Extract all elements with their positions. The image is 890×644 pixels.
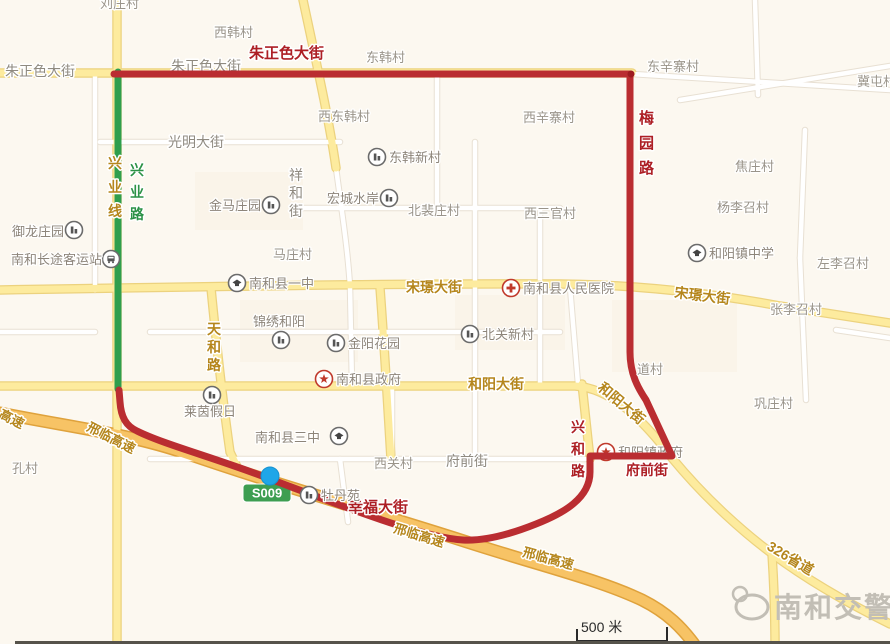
overlays: 南和交警500 米: [15, 467, 890, 644]
hospital-cross: [507, 287, 516, 290]
poi-label: 金阳花园: [348, 336, 400, 351]
watermark-text: 南和交警: [774, 591, 890, 623]
building-icon-circle: [263, 197, 280, 214]
building-glyph: [75, 229, 78, 234]
village-label: 左李召村: [817, 256, 869, 271]
gov-icon: [316, 371, 333, 388]
building-glyph: [213, 394, 216, 399]
building-icon: [381, 190, 398, 207]
traffic-police-logo: [736, 595, 768, 619]
building-icon-circle: [381, 190, 398, 207]
street-label: 园: [639, 135, 654, 152]
route-vertex-dot: [628, 71, 635, 78]
poi-label: 南和县政府: [336, 372, 401, 387]
village-label: 西韩村: [214, 25, 253, 40]
building-glyph: [71, 227, 74, 234]
building-icon: [462, 326, 479, 343]
building-icon: [301, 487, 318, 504]
building-glyph: [282, 339, 285, 344]
street-label: 府前街: [446, 453, 488, 469]
building-glyph: [378, 156, 381, 161]
poi-label: 锦绣和阳: [253, 314, 305, 329]
village-label: 西东韩村: [318, 109, 370, 124]
minor-road: [800, 258, 806, 400]
street-label: 和阳大街: [468, 376, 524, 392]
poi-label: 东韩新村: [389, 150, 441, 165]
village-label: 道村: [637, 362, 663, 377]
building-icon-circle: [273, 332, 290, 349]
building-icon: [369, 149, 386, 166]
poi-label: 御龙庄园: [12, 224, 64, 239]
street-label: 府前街: [626, 462, 668, 478]
street-label: 天: [207, 321, 222, 337]
school-glyph: [337, 437, 341, 440]
shield-number: S009: [252, 486, 282, 501]
poi-label: 南和县三中: [255, 430, 320, 445]
village-label: 孔村: [12, 461, 38, 476]
village-label: 东辛寨村: [647, 59, 699, 74]
building-glyph: [374, 154, 377, 161]
building-glyph: [337, 342, 340, 347]
building-glyph: [390, 197, 393, 202]
village-label: 张李召村: [770, 302, 822, 317]
school-icon: [331, 428, 348, 445]
school-icon: [229, 275, 246, 292]
poi-label: 南和县一中: [249, 276, 314, 291]
building-glyph: [268, 202, 271, 209]
building-icon-circle: [301, 487, 318, 504]
bus-glyph: [108, 257, 113, 259]
street-label: 和: [571, 441, 585, 457]
village-label: 西关村: [374, 456, 413, 471]
minor-road: [755, 0, 758, 95]
map-canvas: 朱正色大街和阳镇政府S009朱正色大街光明大街祥和街府前街朱正色大街梅园路兴和路…: [0, 0, 890, 644]
poi-label: 金马庄园: [209, 198, 261, 213]
heyang-street-326: [0, 386, 890, 624]
street-label: 路: [639, 159, 655, 177]
building-glyph: [310, 494, 313, 499]
building-icon: [204, 387, 221, 404]
poi-label: 北关新村: [482, 327, 534, 342]
street-label: 和: [207, 339, 221, 355]
school-icon: [689, 245, 706, 262]
poi-label: 南和长途客运站: [11, 252, 102, 267]
street-label: 兴: [108, 155, 122, 171]
street-label: 路: [207, 357, 222, 373]
village-label: 西辛寨村: [523, 110, 575, 125]
building-glyph: [471, 333, 474, 338]
street-label: 祥: [289, 167, 303, 183]
map-svg: 朱正色大街和阳镇政府S009朱正色大街光明大街祥和街府前街朱正色大街梅园路兴和路…: [0, 0, 890, 644]
village-label: 西三官村: [524, 206, 576, 221]
poi-label: 南和县人民医院: [523, 281, 614, 296]
street-label: 和: [289, 185, 303, 201]
village-label: 冀屯村: [857, 74, 890, 89]
building-icon: [66, 222, 83, 239]
hospital-icon: [503, 280, 520, 297]
poi-label: 莱茵假日: [184, 404, 236, 419]
village-label: 焦庄村: [735, 159, 774, 174]
current-location-dot: [261, 467, 279, 485]
bus-icon: [103, 251, 120, 268]
building-glyph: [278, 337, 281, 344]
village-label: 马庄村: [273, 247, 312, 262]
building-icon-circle: [462, 326, 479, 343]
village-label: 巩庄村: [754, 396, 793, 411]
building-icon: [263, 197, 280, 214]
street-label: 业: [108, 179, 122, 195]
village-label: 刘庄村: [100, 0, 139, 11]
building-glyph: [386, 195, 389, 202]
poi-label: 和阳镇中学: [709, 246, 774, 261]
street-label: 朱正色大街: [249, 44, 324, 62]
poi-label: 牡丹苑: [321, 488, 360, 503]
building-glyph: [333, 340, 336, 347]
school-glyph: [695, 254, 699, 257]
street-label: 梅: [639, 109, 654, 127]
bus-glyph: [108, 261, 110, 263]
street-label: 线: [108, 203, 122, 219]
building-icon: [328, 335, 345, 352]
village-label: 东韩村: [366, 50, 405, 65]
street-label: 路: [571, 463, 586, 479]
village-label: 杨李召村: [717, 200, 769, 215]
building-icon-circle: [204, 387, 221, 404]
minor-road: [800, 130, 805, 258]
building-glyph: [209, 392, 212, 399]
heyang-street-326-casing: [0, 386, 890, 624]
street-label: 朱正色大街: [5, 63, 75, 79]
village-label: 北裴庄村: [408, 203, 460, 218]
building-glyph: [272, 204, 275, 209]
bus-glyph: [107, 256, 114, 262]
school-glyph: [235, 284, 239, 287]
street-label: 兴: [130, 162, 144, 178]
street-label: 宋璟大街: [405, 279, 462, 295]
poi-label: 宏城水岸: [327, 191, 379, 206]
building-icon-circle: [328, 335, 345, 352]
street-label: 街: [289, 203, 303, 219]
building-icon-circle: [66, 222, 83, 239]
building-icon: [273, 332, 290, 349]
scale-label: 500 米: [581, 619, 622, 635]
building-glyph: [306, 492, 309, 499]
bus-glyph: [112, 261, 114, 263]
building-glyph: [467, 331, 470, 338]
building-icon-circle: [369, 149, 386, 166]
street-label: 兴: [571, 419, 585, 435]
roads: [0, 0, 890, 644]
street-label: 路: [130, 206, 145, 222]
street-label: 光明大街: [168, 134, 224, 150]
street-label: 业: [130, 184, 144, 200]
